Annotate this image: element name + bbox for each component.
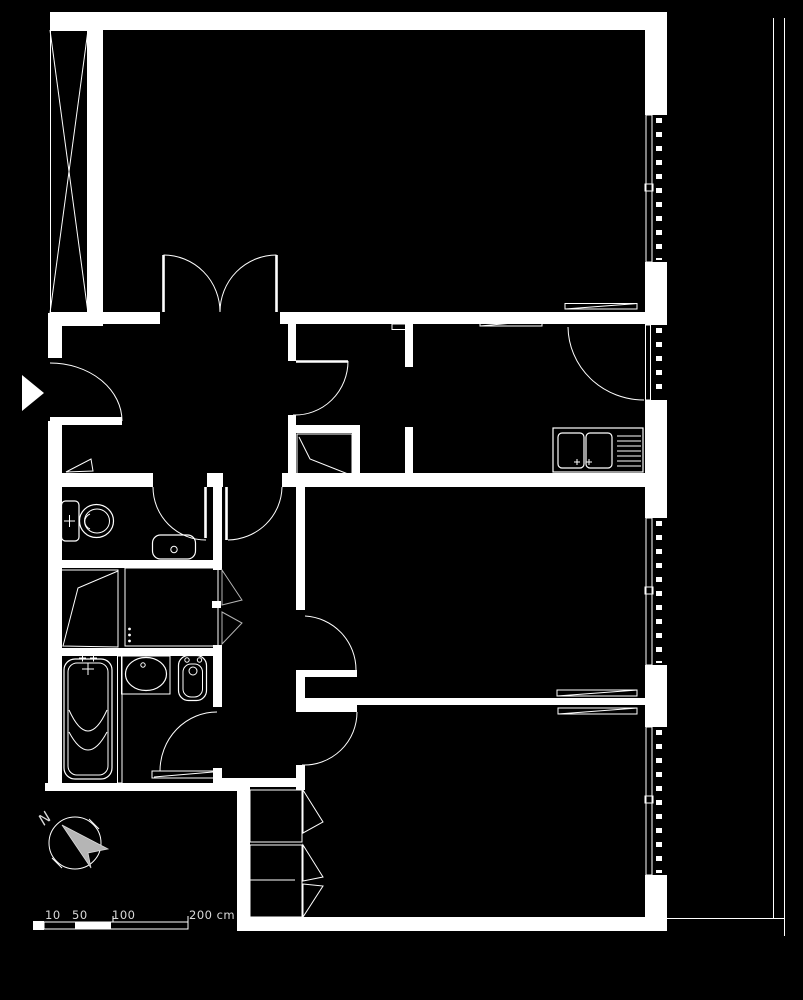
wall-hall-north-1 [95, 312, 163, 324]
kitchen-sink-icon [553, 428, 643, 472]
scale-bar: 10 50 100 200 cm [33, 908, 235, 930]
radiator-icon-bedroom-middle [557, 690, 637, 696]
scale-label-200: 200 cm [189, 908, 235, 922]
jamb-notch [48, 358, 62, 363]
wc-door [153, 487, 206, 540]
wall-hall-east-1 [288, 324, 296, 361]
wall-wardrobe-east [88, 30, 103, 313]
wall-closet-west [237, 785, 250, 930]
balcony-line-icon [667, 18, 785, 936]
corridor-door [227, 487, 283, 540]
wall-niche-east [352, 433, 360, 477]
scale-bar-end-block [33, 921, 44, 930]
wall-bath-south [45, 783, 237, 791]
shower-icon [62, 570, 118, 647]
scale-bar-fill [75, 922, 111, 929]
hall-pantry-door [293, 361, 348, 415]
hinge-notch [213, 707, 222, 712]
wall-kitchen-west-2 [405, 427, 413, 475]
wardrobe-x-icon [50, 30, 88, 313]
corner-basin-icon [153, 535, 196, 559]
jamb-notch [277, 312, 280, 324]
double-door-icon [164, 255, 277, 312]
wall-kitchen-west-1 [405, 324, 413, 367]
wall-right-4 [645, 665, 667, 727]
drainer-lines [617, 436, 641, 466]
wall-mid-3 [282, 473, 645, 487]
bathroom-door [152, 712, 217, 778]
entry-door-leaf [50, 417, 122, 425]
radiator-icon-bedroom-bottom [558, 708, 637, 714]
laundry-cabinet [125, 568, 218, 646]
jamb-notch [160, 312, 163, 324]
compass: N [35, 808, 108, 869]
wall-hall-north-2 [277, 312, 645, 324]
wall-top [50, 12, 667, 30]
radiator-icon-living [565, 304, 637, 310]
scale-label-10: 10 [45, 908, 61, 922]
wall-wc-south [62, 560, 218, 568]
floor-plan-page: N 10 50 100 200 cm [0, 0, 803, 1000]
north-arrow-icon [62, 825, 108, 868]
wall-corridor-west-2 [213, 645, 222, 712]
north-label: N [35, 808, 55, 829]
hall-cabinet-door [66, 459, 93, 472]
balcony-door-icon [568, 325, 659, 400]
scale-bar-outline [44, 922, 188, 929]
wall-under-wardrobe [48, 313, 103, 326]
window-icon-living [645, 115, 659, 262]
washbasin-icon [122, 656, 171, 694]
bedroom-middle-door [305, 616, 357, 677]
wall-bottom [237, 917, 667, 931]
window-icon-bedroom-bottom [645, 727, 659, 875]
bidet-icon [179, 656, 207, 701]
floor-plan-svg: N 10 50 100 200 cm [0, 0, 803, 1000]
wall-mid-1 [50, 473, 153, 487]
scale-label-50: 50 [72, 908, 88, 922]
wall-laundry-south [48, 648, 222, 656]
wall-bedrooms-west-2 [296, 670, 305, 712]
window-icon-bedroom-middle [645, 518, 659, 665]
wall-hall-east-2 [288, 415, 296, 475]
entry-door [22, 363, 122, 425]
laundry-bifold-door [212, 570, 242, 645]
wall-right-2 [645, 262, 667, 325]
wall-right-3 [645, 400, 667, 518]
closet-icon [250, 790, 323, 917]
bedroom-bottom-door [302, 705, 357, 765]
hinge-notch [296, 610, 305, 614]
wall-bedrooms-divider [305, 698, 645, 705]
wall-mid-2 [207, 473, 223, 487]
scale-label-100: 100 [112, 908, 135, 922]
wall-bedrooms-west-1 [296, 473, 305, 614]
wall-right-1 [645, 30, 667, 115]
entrance-arrow-icon [22, 375, 44, 411]
storage-niche [297, 434, 352, 476]
bathtub-icon [64, 655, 112, 780]
toilet-icon [62, 501, 114, 541]
wall-corridor-west-1 [213, 487, 222, 570]
wall-niche-top [288, 425, 360, 433]
wall-bedrooms-west-3 [296, 765, 305, 790]
